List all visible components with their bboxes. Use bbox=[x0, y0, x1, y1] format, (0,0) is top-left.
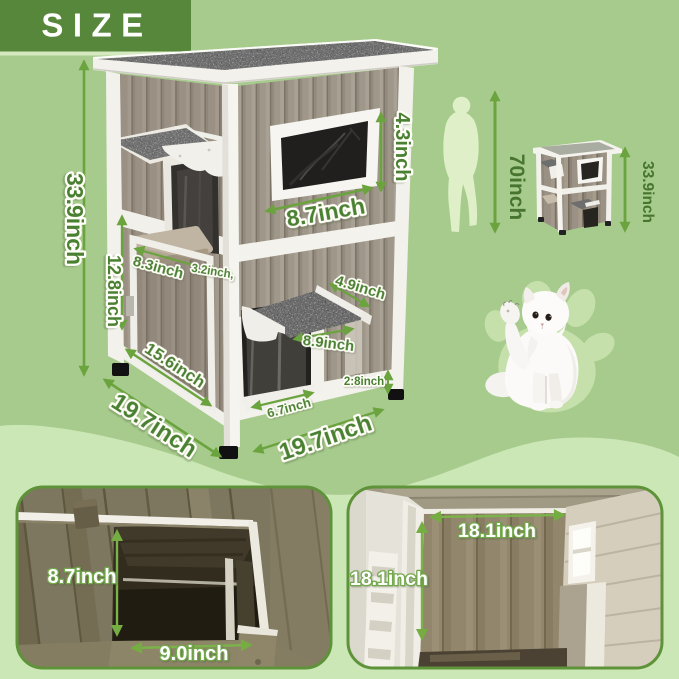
svg-text:4.3inch: 4.3inch bbox=[391, 113, 413, 182]
svg-text:12.8inch: 12.8inch bbox=[104, 255, 124, 327]
svg-text:2:8inch: 2:8inch bbox=[344, 376, 384, 388]
svg-text:9.0inch: 9.0inch bbox=[160, 643, 229, 665]
svg-text:33.9inch: 33.9inch bbox=[62, 173, 88, 265]
svg-text:SIZE: SIZE bbox=[41, 7, 152, 44]
svg-text:18.1inch: 18.1inch bbox=[350, 568, 428, 590]
svg-text:70inch: 70inch bbox=[505, 154, 528, 221]
svg-text:33.9inch: 33.9inch bbox=[639, 161, 656, 223]
svg-text:8.7inch: 8.7inch bbox=[48, 566, 117, 588]
svg-text:18.1inch: 18.1inch bbox=[458, 520, 536, 542]
